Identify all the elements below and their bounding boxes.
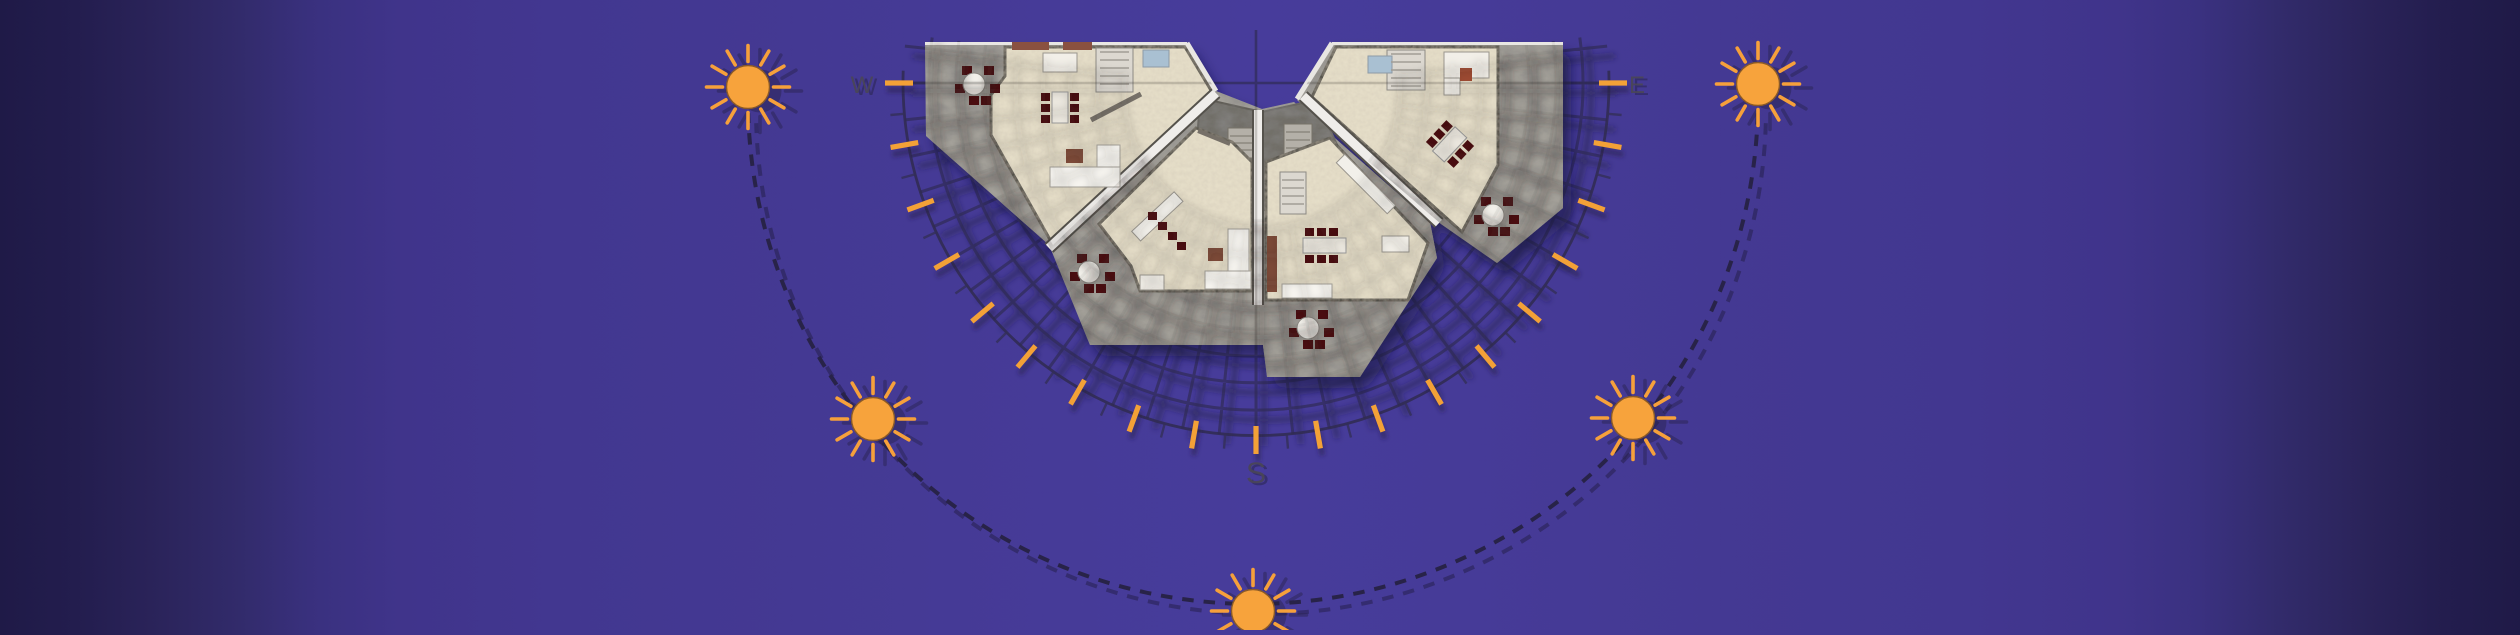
svg-text:W: W — [851, 72, 874, 99]
svg-text:S: S — [1246, 457, 1266, 490]
svg-text:E: E — [1629, 72, 1645, 99]
